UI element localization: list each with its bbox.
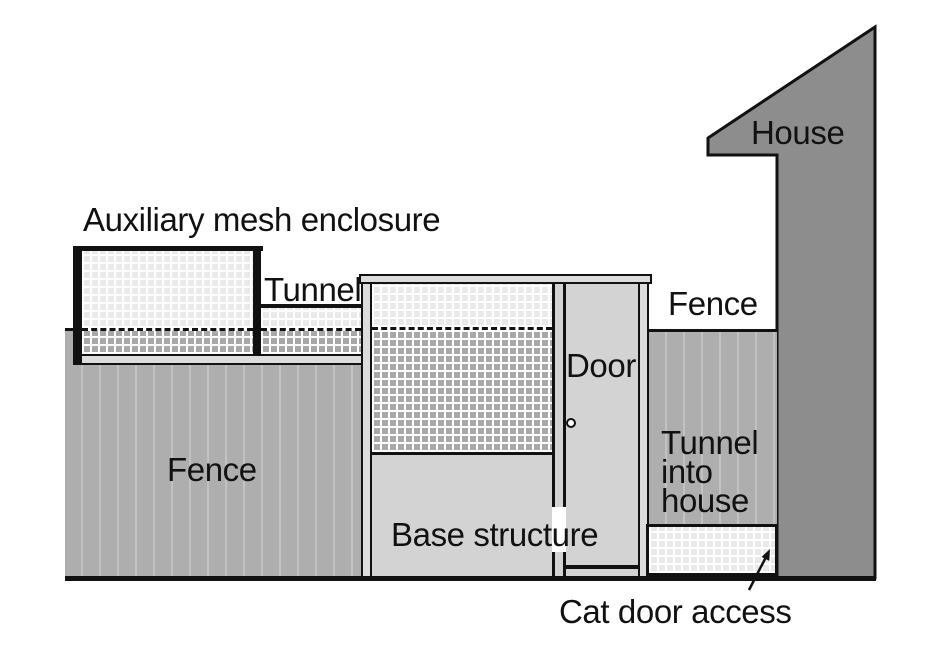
structure-mesh-upper [372, 284, 552, 327]
aux-enclosure-mesh-upper [82, 251, 253, 328]
door-label: Door [566, 349, 636, 382]
structure-left-post [361, 284, 372, 576]
fence-right-label: Fence [668, 287, 758, 320]
fence-left-label: Fence [167, 453, 257, 486]
cat-door-mesh [646, 524, 778, 576]
aux-enclosure-fence-dash-line [82, 328, 253, 331]
door-bottom-rail [566, 565, 638, 569]
tunnel-into-house-line-3: house [661, 486, 758, 515]
aux-enclosure-mesh-lower [82, 331, 253, 354]
tunnel-into-house-label: Tunnel into house [661, 428, 758, 515]
aux-enclosure-left-post [73, 246, 82, 365]
ground-line [65, 576, 876, 581]
tunnel-mesh-lower [261, 331, 361, 354]
cat-door-access-label: Cat door access [559, 595, 791, 628]
cat-enclosure-diagram: Auxiliary mesh enclosure Tunnel House Fe… [0, 0, 940, 658]
tunnel-label: Tunnel [264, 273, 361, 306]
auxiliary-enclosure-label: Auxiliary mesh enclosure [83, 203, 440, 236]
base-structure-label: Base structure [391, 518, 598, 551]
door-frame-divider-upper [552, 284, 566, 507]
structure-fence-dash-line [372, 327, 552, 330]
tunnel-mesh-upper [261, 308, 361, 328]
house-label: House [751, 116, 844, 149]
door-frame-divider-lower [552, 552, 566, 576]
door-knob [566, 418, 576, 428]
enclosure-bottom-rail [80, 354, 362, 365]
structure-mesh-lower [372, 330, 552, 455]
structure-top-cap [359, 274, 652, 284]
aux-enclosure-right-post [253, 246, 261, 356]
tunnel-fence-dash-line [261, 328, 361, 331]
